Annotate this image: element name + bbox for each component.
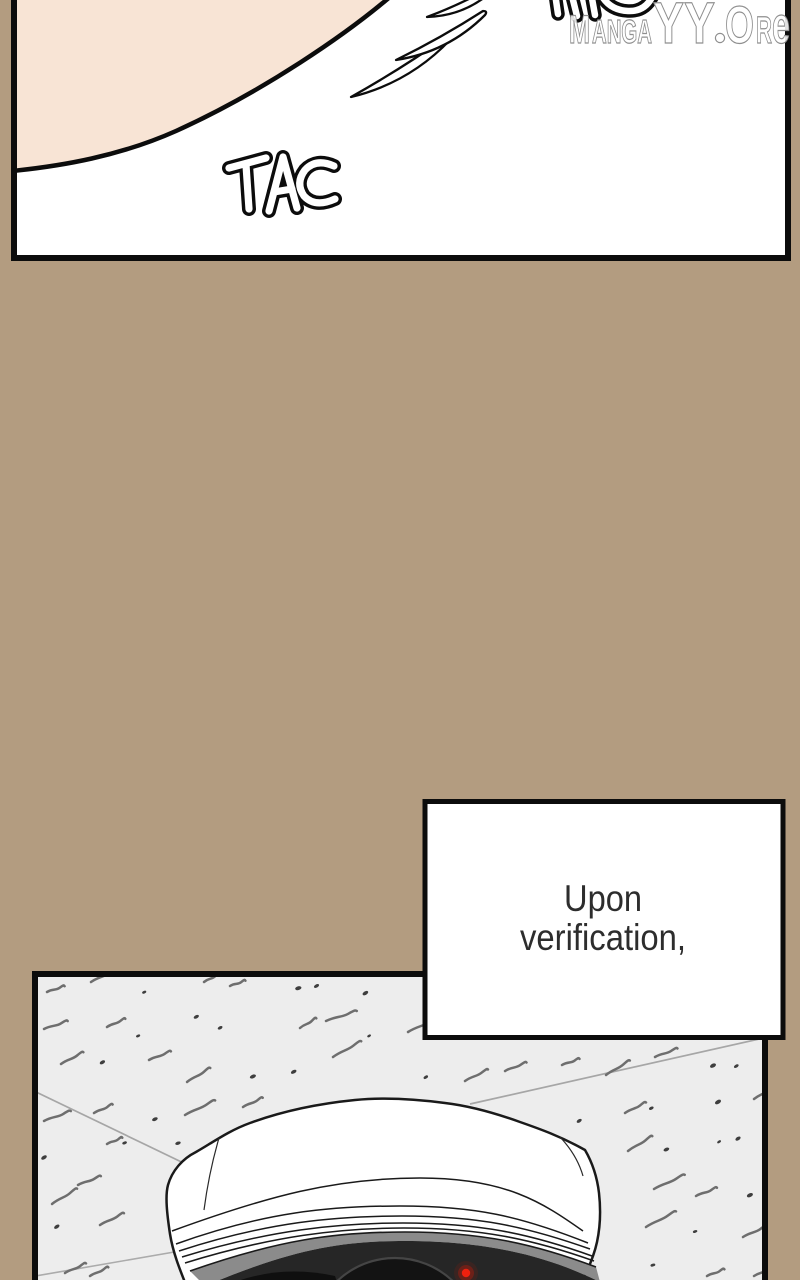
- svg-text:ANGA: ANGA: [592, 13, 652, 50]
- svg-text:O: O: [725, 0, 754, 55]
- svg-text:verification,: verification,: [520, 917, 686, 958]
- svg-text:R: R: [756, 10, 772, 52]
- svg-text:YY: YY: [653, 0, 715, 56]
- svg-text:Upon: Upon: [564, 878, 642, 919]
- svg-text:M: M: [569, 8, 590, 52]
- svg-text:e: e: [772, 0, 790, 55]
